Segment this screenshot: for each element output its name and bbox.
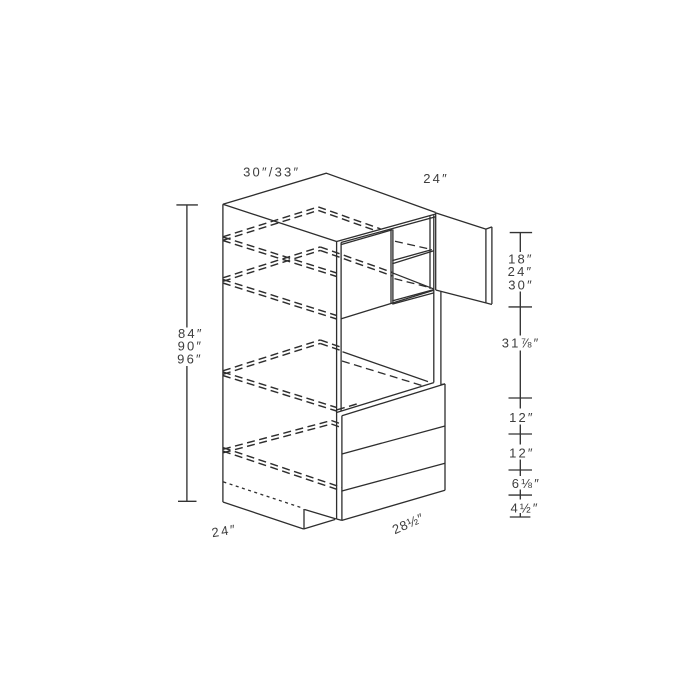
svg-text:12″: 12″ [509, 446, 535, 461]
svg-text:28½″: 28½″ [390, 510, 426, 537]
svg-text:12″: 12″ [509, 410, 535, 425]
svg-text:4½″: 4½″ [510, 500, 539, 515]
svg-text:24″: 24″ [211, 521, 239, 540]
svg-text:30″: 30″ [508, 278, 534, 293]
svg-text:6⅛″: 6⅛″ [512, 476, 541, 491]
svg-text:30″/33″: 30″/33″ [243, 164, 300, 179]
svg-text:31⅞″: 31⅞″ [502, 336, 541, 351]
svg-text:24″: 24″ [423, 171, 449, 186]
svg-text:96″: 96″ [177, 352, 203, 367]
